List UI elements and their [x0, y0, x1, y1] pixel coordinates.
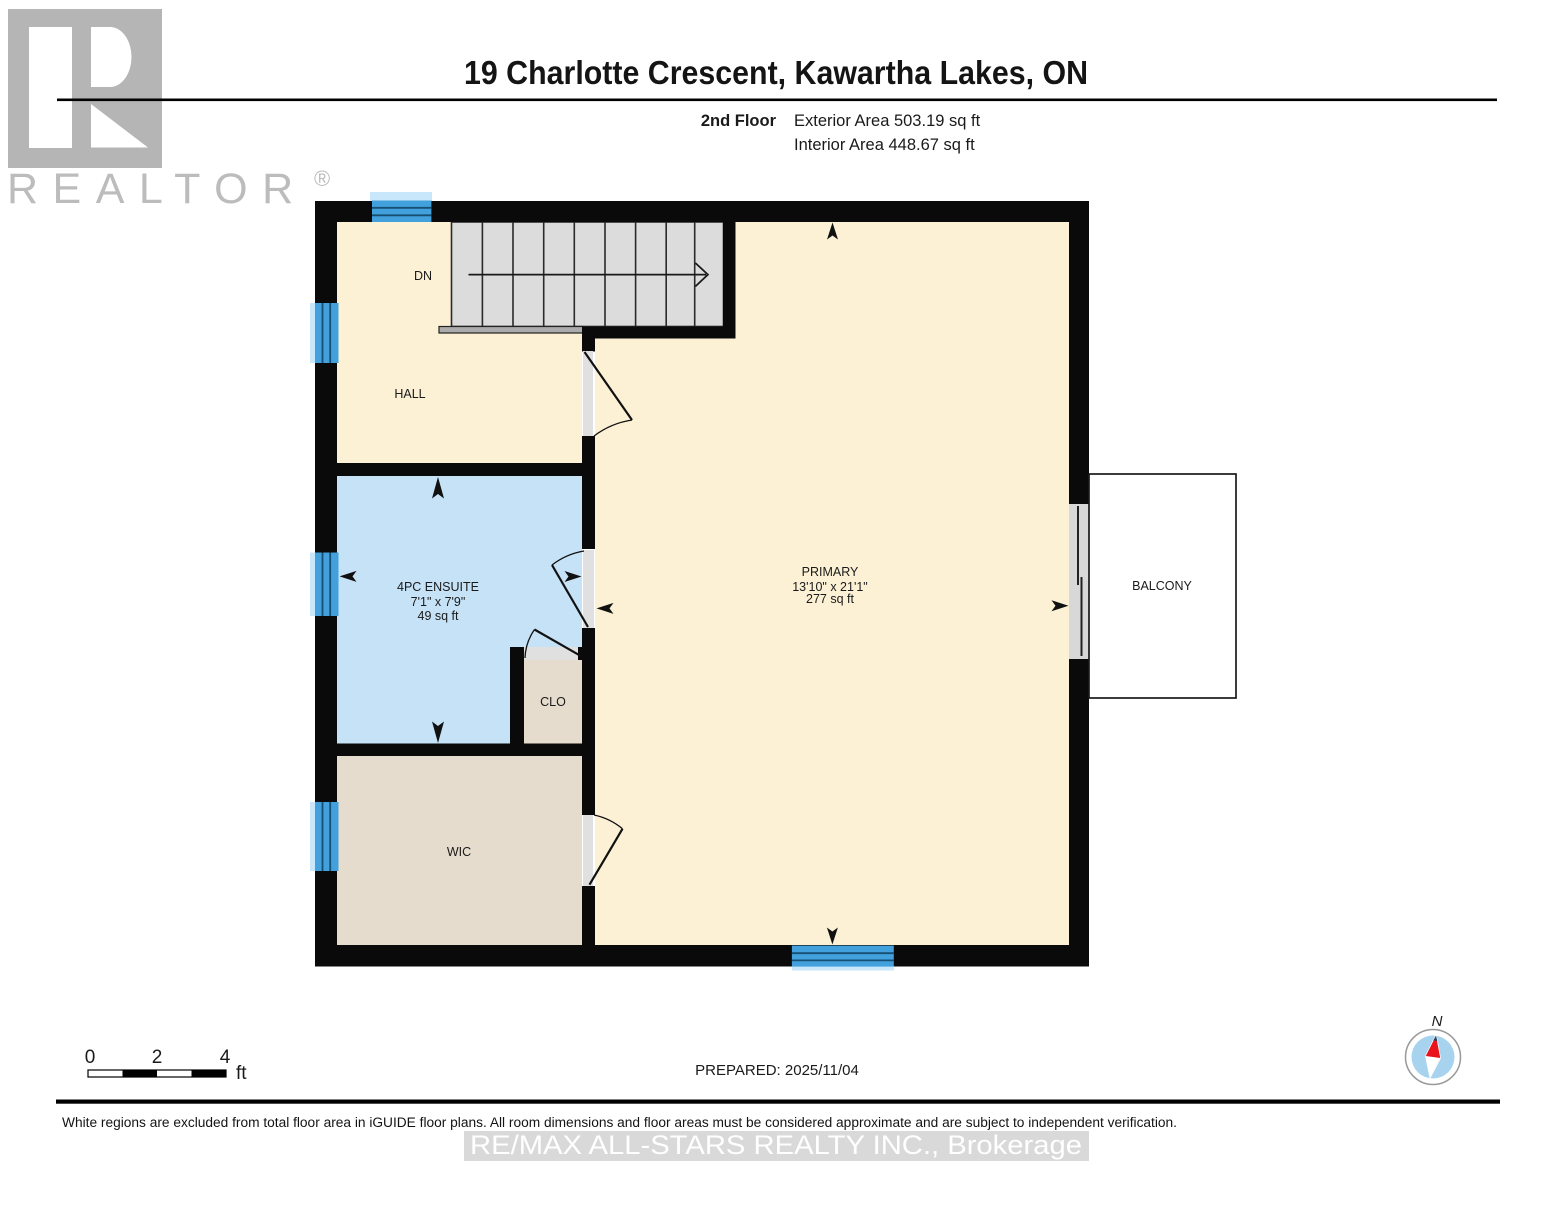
- svg-text:2nd Floor: 2nd Floor: [701, 112, 777, 130]
- svg-text:HALL: HALL: [394, 387, 425, 401]
- svg-text:PRIMARY: PRIMARY: [802, 565, 859, 579]
- svg-text:White regions are excluded fro: White regions are excluded from total fl…: [62, 1115, 1177, 1131]
- svg-text:Exterior Area 503.19 sq ft: Exterior Area 503.19 sq ft: [794, 112, 981, 130]
- svg-text:RE/MAX ALL-STARS REALTY INC.,: RE/MAX ALL-STARS REALTY INC., Brokerage: [470, 1130, 1082, 1160]
- svg-text:7'1" x 7'9": 7'1" x 7'9": [411, 595, 466, 609]
- svg-text:4: 4: [220, 1047, 231, 1068]
- svg-text:19 Charlotte Crescent, Kawarth: 19 Charlotte Crescent, Kawartha Lakes, O…: [464, 55, 1088, 92]
- svg-text:277 sq ft: 277 sq ft: [806, 592, 854, 606]
- svg-text:N: N: [1432, 1013, 1443, 1030]
- svg-text:Interior Area 448.67 sq ft: Interior Area 448.67 sq ft: [794, 136, 975, 154]
- svg-text:0: 0: [85, 1047, 96, 1068]
- svg-text:2: 2: [152, 1047, 163, 1068]
- svg-text:BALCONY: BALCONY: [1132, 579, 1192, 593]
- svg-text:REALTOR: REALTOR: [7, 165, 308, 213]
- svg-text:CLO: CLO: [540, 695, 566, 709]
- svg-text:WIC: WIC: [447, 845, 471, 859]
- svg-text:49 sq ft: 49 sq ft: [418, 609, 460, 623]
- svg-text:®: ®: [314, 166, 330, 191]
- svg-text:4PC ENSUITE: 4PC ENSUITE: [397, 580, 479, 594]
- svg-text:ft: ft: [236, 1063, 247, 1084]
- svg-text:PREPARED: 2025/11/04: PREPARED: 2025/11/04: [695, 1062, 859, 1079]
- svg-text:DN: DN: [414, 269, 432, 283]
